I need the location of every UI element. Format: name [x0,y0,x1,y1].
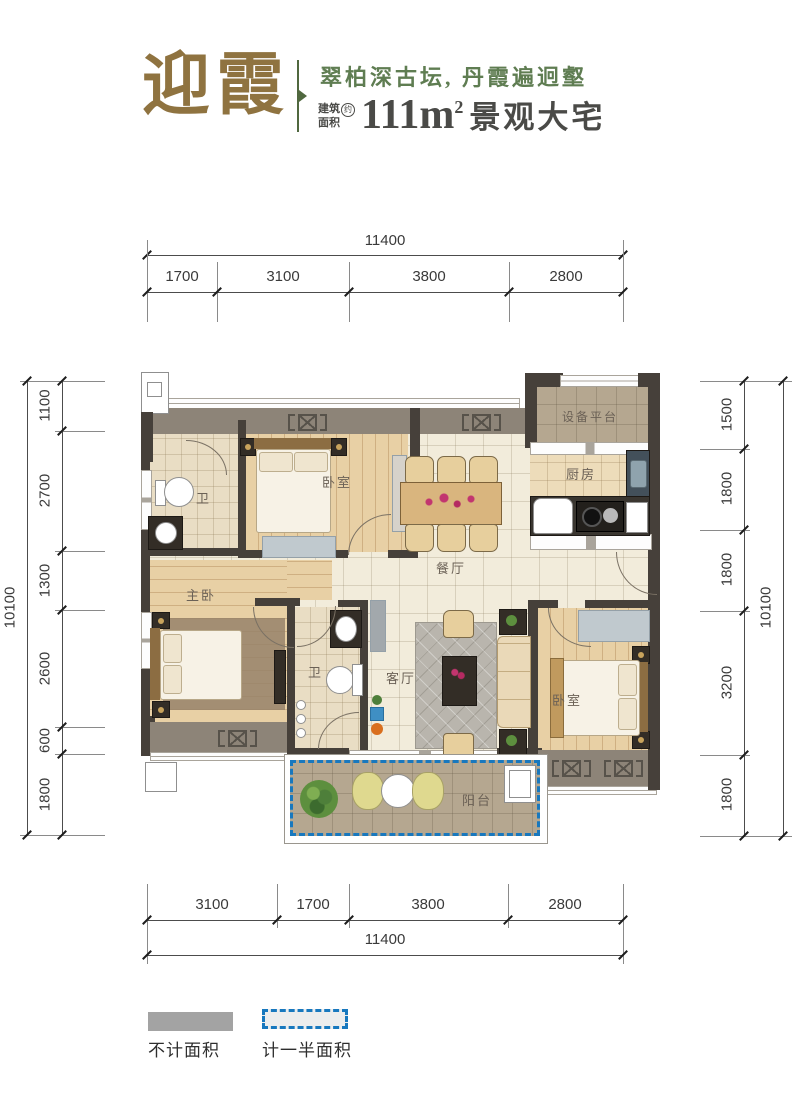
room-label-equipment: 设备平台 [562,408,618,425]
master-nook-floor [287,560,332,600]
ext-line [700,381,792,382]
area-value: 111m2 [361,94,463,136]
wall [528,600,558,608]
legend-swatch-dashed [262,1009,348,1029]
dining-chair [405,524,434,552]
window-symbol [288,414,327,431]
table-flowers [420,492,480,512]
dim-top-seg4: 2800 [534,268,598,285]
area-label-line1: 建筑 [318,103,340,117]
dim-left-seg3: 1300 [37,549,54,613]
orange-stool [371,723,383,735]
dining-chair [437,524,466,552]
header-tagline: 翠柏深古坛, 丹霞遍迥壑 [320,60,587,92]
ext-line [508,884,509,928]
dim-right-seg2: 1800 [719,457,736,521]
dining-chair [405,456,434,484]
window-symbol [552,760,591,777]
sink [155,522,177,544]
dim-bottom-total: 11400 [353,931,417,948]
divider-arrow-icon [299,90,307,102]
dim-left-seg4: 2600 [37,637,54,701]
dim-line [147,255,623,256]
room-label-dining: 餐厅 [436,558,466,577]
pillow [163,665,182,694]
dim-left-seg1: 1100 [37,374,54,438]
pillow [618,664,637,696]
room-label-bedroom-top: 卧室 [322,472,352,491]
dim-bottom-seg3: 3800 [396,896,460,913]
dim-line [147,955,623,956]
plant-small [506,615,517,626]
bedroom-right-bay-sill [545,786,657,795]
sink [335,616,357,642]
wall [141,412,153,462]
room-label-kitchen: 厨房 [566,464,596,483]
flue-inner [147,382,162,397]
burner [603,508,618,523]
dim-top-seg2: 3100 [251,268,315,285]
window-equipment [560,375,642,387]
pillow [618,698,637,730]
toilet [164,477,194,507]
area-row: 建筑约 面积 111m2 景观大宅 [318,94,605,136]
room-label-balcony: 阳台 [462,790,492,809]
area-sup: 2 [454,97,463,117]
dim-line [147,292,623,293]
balcony-chair [412,772,444,810]
balcony-chair [352,772,384,810]
dim-right-seg3: 1800 [719,538,736,602]
ext-line [349,884,350,928]
window-symbol [462,414,501,431]
dim-line [147,920,623,921]
wall [648,742,660,790]
page-title: 迎霞 [142,48,302,123]
legend-swatch-solid [148,1012,233,1031]
kitchen-pass-counter [530,534,652,550]
shower-dot [296,714,306,724]
room-label-living: 客厅 [386,668,416,687]
coffee-table-flowers [450,666,466,682]
drain-platform [145,762,177,792]
dim-right-seg5: 1800 [719,763,736,827]
ext-line [277,884,278,928]
nightstand [152,612,170,629]
floorplan-page: 迎霞 翠柏深古坛, 丹霞遍迥壑 建筑约 面积 111m2 景观大宅 11400 … [0,0,800,1120]
area-suffix: 景观大宅 [469,100,605,136]
dim-line [783,381,784,836]
shower-dot [296,728,306,738]
balcony-plant [300,780,338,818]
room-label-bath-top: 卫 [196,488,211,507]
dim-bottom-seg2: 1700 [281,896,345,913]
balcony-table [381,774,415,808]
blue-stool [370,707,384,721]
dim-bottom-seg1: 3100 [180,896,244,913]
toilet [326,666,354,694]
kitchen-cabinet [626,502,648,533]
room-label-bedroom-right: 卧室 [552,690,582,709]
dining-chair [469,524,498,552]
window-symbol [604,760,643,777]
dim-left-total: 10100 [2,576,19,640]
legend-label-solid: 不计面积 [148,1036,220,1061]
pillow [259,452,293,472]
dining-chair [469,456,498,484]
ext-line [623,240,624,322]
wall [255,598,300,606]
ext-line [700,836,792,837]
pillow [163,634,182,663]
dim-top-seg3: 3800 [397,268,461,285]
bed-headboard [254,438,331,449]
dim-right-seg4: 3200 [719,651,736,715]
plant-small [372,695,382,705]
nightstand [331,438,347,456]
legend-label-dashed: 计一半面积 [262,1036,352,1061]
dim-line [27,381,28,835]
dining-chair [437,456,466,484]
area-label-line2: 面积 [318,117,355,131]
master-bay-sill [150,752,289,761]
dim-left-seg2: 2700 [37,459,54,523]
bed-headboard [150,628,160,700]
armchair [443,610,474,638]
burner [582,507,602,527]
room-label-master: 主卧 [186,585,216,604]
wall [525,373,537,448]
area-label-stack: 建筑约 面积 [318,103,355,131]
nightstand [152,701,170,718]
ext-line [147,240,148,322]
approx-circle-icon: 约 [341,103,355,117]
dim-left-seg6: 1800 [37,763,54,827]
dresser-tv [274,650,286,704]
room-label-bath-mid: 卫 [308,662,323,681]
shower-dot [296,700,306,710]
dim-bottom-seg4: 2800 [533,896,597,913]
pillow [294,452,328,472]
dim-top-seg1: 1700 [150,268,214,285]
dim-right-total: 10100 [758,576,775,640]
washbasin [533,498,573,534]
dim-right-seg1: 1500 [719,383,736,447]
toilet-tank [352,664,363,696]
tv-cabinet [370,600,386,652]
window-symbol [218,730,257,747]
washing-machine-door [509,770,531,798]
bed-bench [262,536,336,558]
sofa [497,636,531,728]
dim-top-total: 11400 [353,232,417,249]
kitchen-sink [630,460,647,488]
plant-small [506,735,517,746]
wall [585,600,648,608]
